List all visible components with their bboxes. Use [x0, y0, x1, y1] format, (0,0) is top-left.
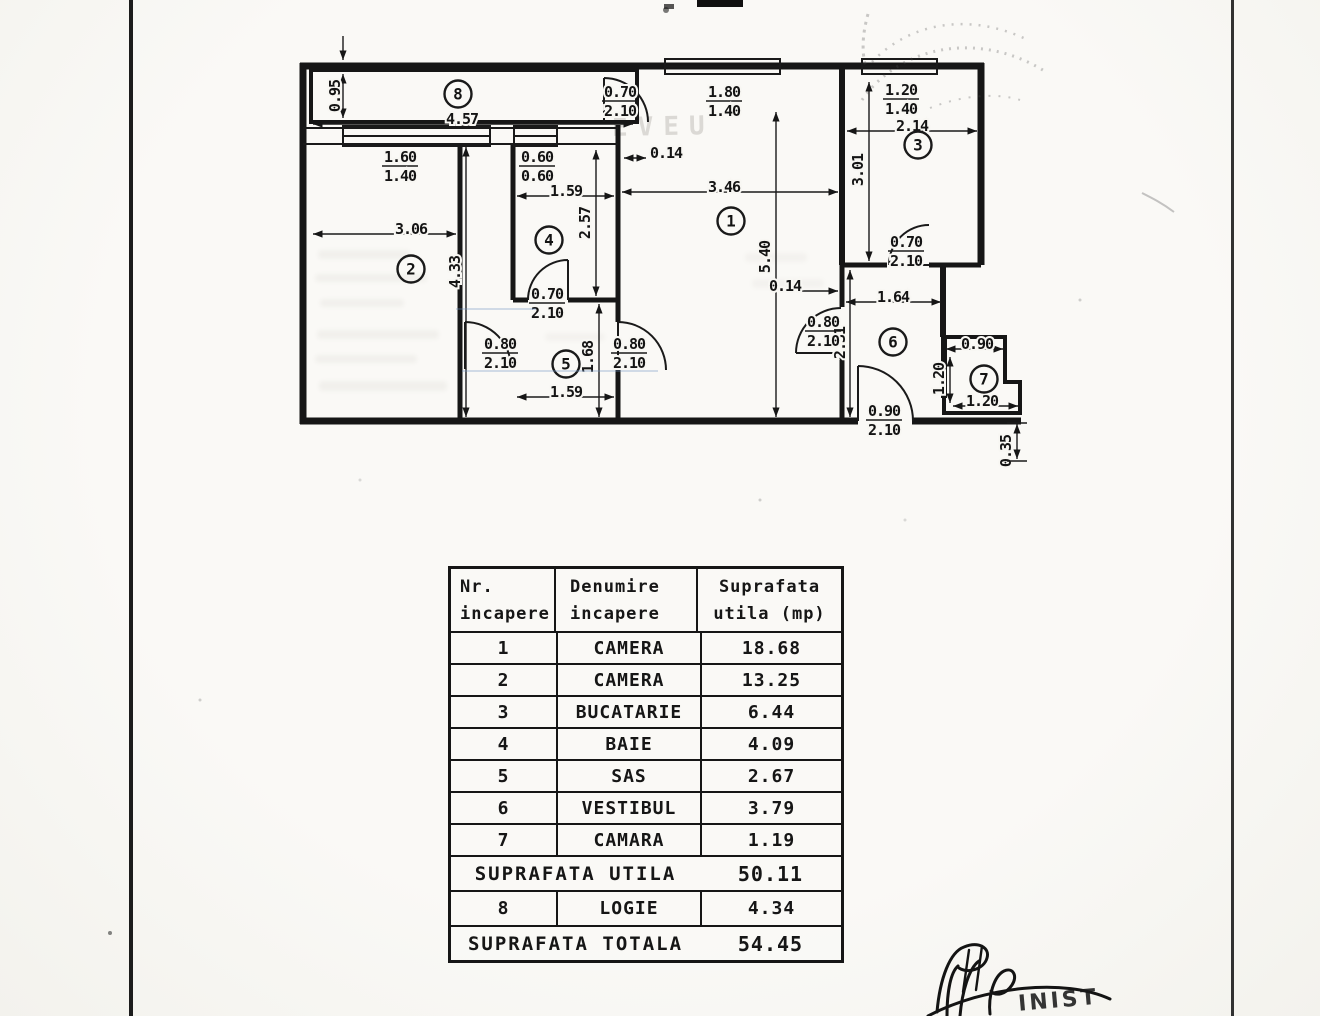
table-row: 6VESTIBUL3.79: [451, 791, 841, 823]
table-row: 3BUCATARIE6.44: [451, 695, 841, 727]
opening-width-label: 0.60: [521, 148, 554, 166]
opening-height-label: 1.40: [885, 100, 918, 118]
total-row-suprafata-totala: SUPRAFATA TOTALA54.45: [451, 925, 841, 960]
speck: [759, 499, 762, 502]
cell-name: BAIE: [558, 729, 702, 759]
total-label: SUPRAFATA TOTALA: [451, 927, 700, 960]
cell-name: CAMARA: [558, 825, 702, 855]
opening-width-label: 0.90: [868, 402, 901, 420]
cell-area: 4.34: [702, 892, 841, 925]
dimension-label: 3.46: [708, 178, 741, 196]
speck: [108, 931, 112, 935]
header-cell: Nr.incapere: [451, 569, 556, 631]
doors: [465, 78, 929, 421]
opening-width-label: 0.70: [890, 233, 923, 251]
dimension-label: 1.59: [550, 383, 583, 401]
opening-width-label: 0.80: [613, 335, 646, 353]
cell-nr: 4: [451, 729, 558, 759]
header-cell: Denumireincapere: [556, 569, 698, 631]
dimension-label: 1.20: [930, 362, 948, 395]
opening-width-label: 0.70: [604, 83, 637, 101]
table-row: 2CAMERA13.25: [451, 663, 841, 695]
room-number: 1: [726, 212, 736, 231]
opening-width-label: 0.80: [484, 335, 517, 353]
header-line: Suprafata: [719, 577, 820, 597]
cell-area: 6.44: [702, 697, 841, 727]
speck: [359, 479, 362, 482]
cell-area: 3.79: [702, 793, 841, 823]
opening-width-label: 1.80: [708, 83, 741, 101]
speck: [663, 7, 669, 13]
cell-name: BUCATARIE: [558, 697, 702, 727]
table-header-row: Nr.incapereDenumireincapereSuprafatautil…: [451, 569, 841, 631]
stray-mark: [1142, 193, 1174, 212]
opening-height-label: 2.10: [613, 354, 646, 372]
cell-area: 18.68: [702, 633, 841, 663]
table-row: 7CAMARA1.19: [451, 823, 841, 855]
opening-height-label: 0.60: [521, 167, 554, 185]
dimension-label: 4.33: [446, 255, 464, 288]
area-table: Nr.incapereDenumireincapereSuprafatautil…: [448, 566, 844, 963]
cell-area: 13.25: [702, 665, 841, 695]
dimension-label: 1.68: [579, 340, 597, 373]
stamp-arc: [872, 24, 1028, 62]
room-number: 8: [453, 85, 463, 104]
cell-name: LOGIE: [558, 892, 702, 925]
cell-name: SAS: [558, 761, 702, 791]
opening-height-label: 2.10: [531, 304, 564, 322]
room-number: 4: [544, 231, 554, 250]
cell-area: 2.67: [702, 761, 841, 791]
cell-name: VESTIBUL: [558, 793, 702, 823]
room-number: 2: [406, 260, 416, 279]
cell-name: CAMERA: [558, 665, 702, 695]
total-row-suprafata-utila: SUPRAFATA UTILA50.11: [451, 855, 841, 890]
total-value: 50.11: [700, 857, 841, 890]
cell-area: 4.09: [702, 729, 841, 759]
cell-nr: 2: [451, 665, 558, 695]
header-line: Denumire: [570, 577, 660, 597]
opening-width-label: 1.60: [384, 148, 417, 166]
table-row: 5SAS2.67: [451, 759, 841, 791]
signature-stamp-text: INIST: [1017, 985, 1100, 1016]
cell-nr: 8: [451, 892, 558, 925]
signature-stroke: [947, 966, 958, 1016]
room-number: 3: [913, 136, 923, 155]
cell-name: CAMERA: [558, 633, 702, 663]
dimension-label: 1.59: [550, 182, 583, 200]
speck: [1079, 299, 1082, 302]
table-row: 1CAMERA18.68: [451, 631, 841, 663]
dimension-label: 5.40: [756, 240, 774, 273]
cell-area: 1.19: [702, 825, 841, 855]
dimension-label: 1.20: [966, 392, 999, 410]
opening-height-label: 1.40: [708, 102, 741, 120]
room-number: 6: [888, 333, 898, 352]
dimension-label: 0.95: [326, 79, 344, 112]
scanned-floorplan-page: EVEU: [0, 0, 1320, 1016]
dimension-label: 3.01: [849, 153, 867, 186]
speck: [904, 519, 907, 522]
opening-height-label: 2.10: [484, 354, 517, 372]
total-value: 54.45: [700, 927, 841, 960]
dimension-label: 1.64: [877, 288, 910, 306]
speck: [199, 699, 202, 702]
header-line: incapere: [460, 604, 550, 624]
opening-width-label: 0.70: [531, 285, 564, 303]
dimension-label: 0.90: [961, 335, 994, 353]
cell-nr: 7: [451, 825, 558, 855]
cell-nr: 6: [451, 793, 558, 823]
opening-height-label: 2.10: [868, 421, 901, 439]
opening-width-label: 0.80: [807, 313, 840, 331]
dimension-label: 0.14: [769, 277, 802, 295]
dimension-label: 3.06: [395, 220, 428, 238]
opening-height-label: 2.10: [890, 252, 923, 270]
opening-height-label: 1.40: [384, 167, 417, 185]
opening-width-label: 1.20: [885, 81, 918, 99]
room-number: 7: [979, 370, 989, 389]
cell-nr: 1: [451, 633, 558, 663]
table-row: 4BAIE4.09: [451, 727, 841, 759]
opening-height-label: 2.10: [807, 332, 840, 350]
header-line: Nr.: [460, 577, 494, 597]
table-row-logie: 8LOGIE4.34: [451, 890, 841, 925]
dimension-label: 0.14: [650, 144, 683, 162]
stamp-arc: [930, 96, 1020, 108]
dimension-label: 0.35: [997, 434, 1015, 467]
header-cell: Suprafatautila (mp): [698, 569, 841, 631]
dimension-label: 2.57: [576, 207, 594, 239]
cell-nr: 5: [451, 761, 558, 791]
total-label: SUPRAFATA UTILA: [451, 857, 700, 890]
header-line: incapere: [570, 604, 660, 624]
header-line: utila (mp): [713, 604, 825, 624]
cell-nr: 3: [451, 697, 558, 727]
signature: INIST: [928, 945, 1110, 1016]
opening-height-label: 2.10: [604, 102, 637, 120]
dimension-label: 4.57: [446, 110, 478, 128]
